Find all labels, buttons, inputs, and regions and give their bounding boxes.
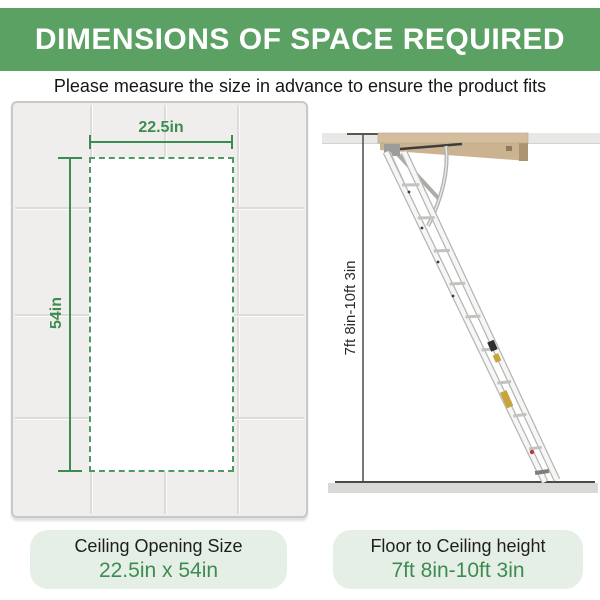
height-dimension-tick-top	[58, 157, 82, 159]
ceiling-height-card: Floor to Ceiling height 7ft 8in-10ft 3in	[333, 530, 583, 589]
opening-size-card: Ceiling Opening Size 22.5in x 54in	[30, 530, 287, 589]
page-title: DIMENSIONS OF SPACE REQUIRED	[35, 23, 565, 57]
height-dimension-label: 54in	[48, 285, 68, 341]
subtitle: Please measure the size in advance to en…	[0, 76, 600, 97]
ceiling-height-value: 7ft 8in-10ft 3in	[391, 558, 524, 584]
height-dimension-line	[69, 158, 71, 472]
width-dimension-line	[89, 141, 233, 143]
opening-size-title: Ceiling Opening Size	[74, 536, 242, 558]
ceiling-opening-dashed-outline	[89, 157, 234, 472]
header-banner: DIMENSIONS OF SPACE REQUIRED	[0, 8, 600, 71]
infographic: DIMENSIONS OF SPACE REQUIRED Please meas…	[0, 0, 600, 600]
width-dimension-label: 22.5in	[89, 119, 233, 137]
height-dimension-tick-bottom	[58, 470, 82, 472]
tile-seam-vertical	[237, 105, 239, 514]
floor-to-ceiling-dimension-label: 7ft 8in-10ft 3in	[342, 248, 362, 368]
ceiling-height-title: Floor to Ceiling height	[370, 536, 545, 558]
opening-size-value: 22.5in x 54in	[99, 558, 218, 584]
floor-line	[328, 482, 598, 493]
